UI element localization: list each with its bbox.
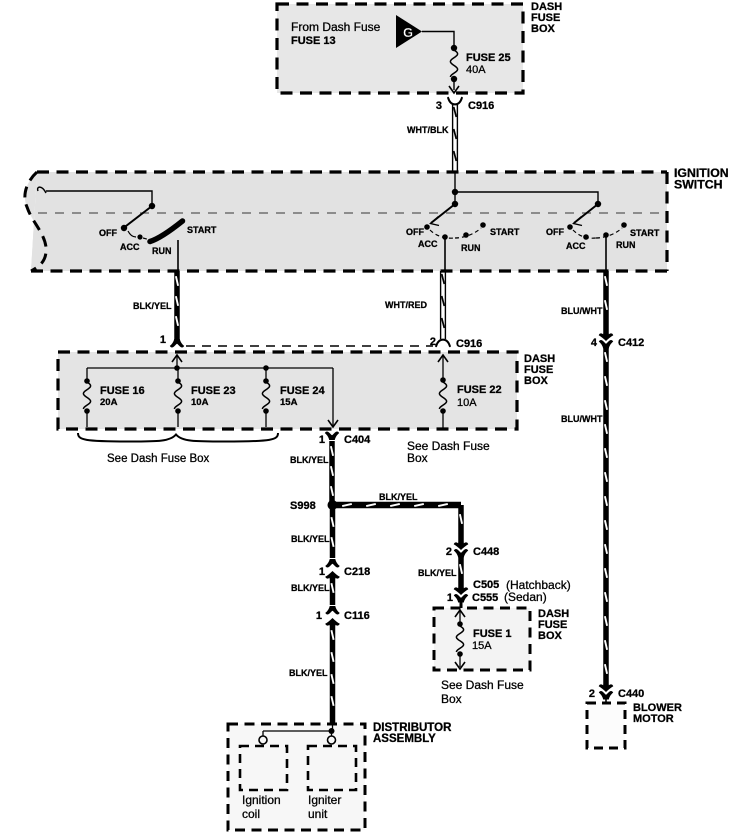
svg-text:Box: Box [407, 451, 428, 465]
svg-text:3: 3 [436, 100, 442, 112]
svg-text:C440: C440 [618, 688, 644, 700]
svg-text:RUN: RUN [616, 240, 636, 250]
svg-text:FUSE 13: FUSE 13 [291, 35, 336, 47]
svg-text:coil: coil [242, 807, 260, 821]
svg-text:BOX: BOX [538, 630, 563, 642]
svg-text:C505: C505 [473, 579, 499, 591]
svg-text:2: 2 [446, 546, 452, 558]
svg-text:See Dash Fuse Box: See Dash Fuse Box [107, 453, 210, 465]
svg-text:BLK/YEL: BLK/YEL [418, 568, 457, 578]
svg-text:S998: S998 [290, 500, 316, 512]
svg-text:BLK/YEL: BLK/YEL [289, 668, 328, 678]
svg-text:ACC: ACC [120, 242, 140, 252]
svg-text:BLU/WHT: BLU/WHT [561, 414, 603, 424]
svg-text:SWITCH: SWITCH [674, 178, 723, 192]
svg-text:Box: Box [441, 692, 462, 706]
svg-text:C116: C116 [344, 610, 370, 622]
svg-text:BLK/YEL: BLK/YEL [290, 455, 329, 465]
svg-text:FUSE 22: FUSE 22 [457, 384, 502, 396]
svg-text:15A: 15A [472, 640, 492, 652]
svg-text:BLK/YEL: BLK/YEL [379, 492, 418, 502]
svg-text:WHT/BLK: WHT/BLK [407, 125, 449, 135]
svg-text:1: 1 [319, 434, 325, 446]
svg-text:See Dash Fuse: See Dash Fuse [441, 678, 524, 692]
svg-text:10A: 10A [457, 397, 477, 409]
svg-text:2: 2 [589, 688, 595, 700]
svg-text:RUN: RUN [152, 246, 172, 256]
svg-text:C555: C555 [472, 592, 498, 604]
svg-text:10A: 10A [191, 397, 209, 408]
svg-text:START: START [490, 227, 520, 237]
svg-text:FUSE 1: FUSE 1 [473, 628, 512, 640]
svg-text:FUSE 25: FUSE 25 [466, 52, 511, 64]
svg-text:C412: C412 [618, 337, 644, 349]
svg-text:ACC: ACC [418, 239, 438, 249]
svg-text:ASSEMBLY: ASSEMBLY [373, 733, 436, 745]
svg-text:Ignition: Ignition [242, 793, 281, 807]
svg-text:C218: C218 [344, 566, 370, 578]
svg-text:1: 1 [160, 334, 166, 346]
svg-text:MOTOR: MOTOR [633, 713, 674, 725]
svg-text:C404: C404 [344, 434, 371, 446]
svg-text:BLU/WHT: BLU/WHT [561, 306, 603, 316]
svg-text:unit: unit [308, 807, 328, 821]
svg-text:RUN: RUN [461, 243, 481, 253]
svg-text:ACC: ACC [566, 241, 586, 251]
svg-text:20A: 20A [100, 397, 118, 408]
svg-text:From Dash Fuse: From Dash Fuse [291, 20, 381, 34]
svg-text:BLK/YEL: BLK/YEL [133, 301, 172, 311]
svg-text:(Sedan): (Sedan) [504, 590, 547, 604]
svg-text:4: 4 [591, 337, 598, 349]
svg-text:FUSE 16: FUSE 16 [100, 385, 145, 397]
svg-text:C916: C916 [456, 338, 482, 350]
svg-text:C916: C916 [468, 100, 494, 112]
svg-text:1: 1 [316, 610, 322, 622]
svg-text:40A: 40A [466, 64, 486, 76]
svg-text:OFF: OFF [99, 228, 117, 238]
svg-text:FUSE 24: FUSE 24 [280, 385, 326, 397]
svg-text:WHT/RED: WHT/RED [385, 300, 427, 310]
svg-text:OFF: OFF [406, 227, 424, 237]
svg-text:BOX: BOX [531, 23, 556, 35]
svg-text:START: START [630, 228, 660, 238]
svg-text:15A: 15A [280, 397, 298, 408]
svg-text:G: G [403, 25, 413, 40]
svg-text:FUSE 23: FUSE 23 [191, 385, 236, 397]
svg-text:1: 1 [447, 592, 453, 604]
svg-text:1: 1 [319, 566, 325, 578]
svg-text:BOX: BOX [524, 375, 549, 387]
svg-text:BLK/YEL: BLK/YEL [291, 534, 330, 544]
svg-text:Igniter: Igniter [308, 793, 341, 807]
svg-text:OFF: OFF [546, 227, 564, 237]
svg-text:START: START [187, 225, 217, 235]
svg-text:C448: C448 [473, 546, 499, 558]
svg-text:BLK/YEL: BLK/YEL [291, 583, 330, 593]
